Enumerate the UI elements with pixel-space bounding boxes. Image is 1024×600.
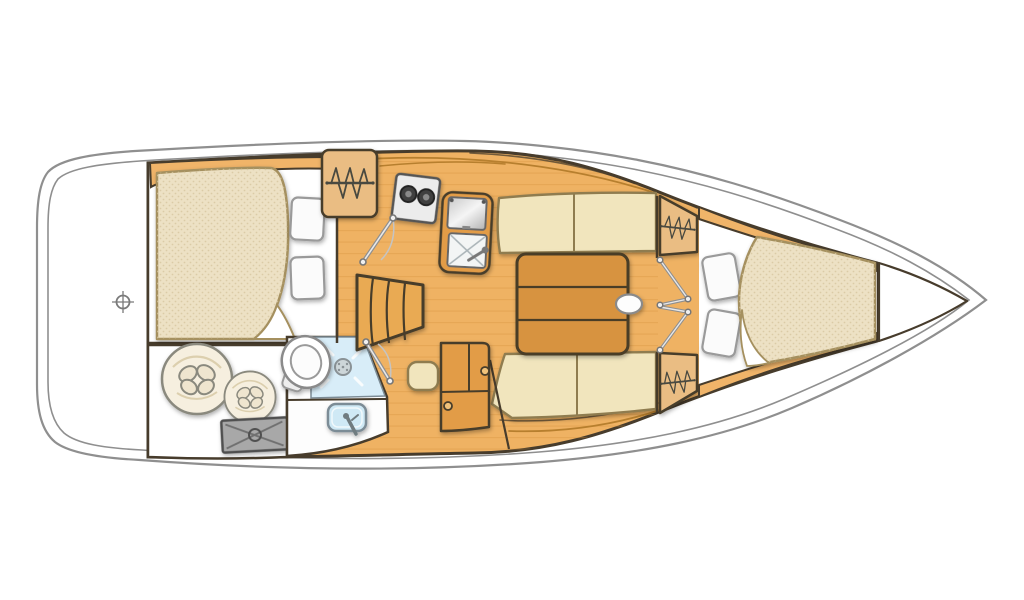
stool	[408, 362, 438, 390]
head-divider-wall	[287, 399, 387, 400]
icebox	[447, 197, 487, 230]
washbasin	[328, 404, 366, 434]
shower-drain-icon	[335, 359, 351, 375]
boat-floor-plan	[0, 0, 1024, 600]
hanging-locker-aft	[322, 150, 377, 217]
starboard-settee	[498, 193, 656, 253]
saloon-table	[517, 254, 642, 354]
deck-hatch	[221, 417, 289, 452]
aft-berth	[157, 168, 295, 339]
port-settee	[492, 352, 656, 418]
storage-cabinet	[441, 343, 489, 431]
galley-counter	[439, 192, 493, 275]
two-burner-stove	[391, 173, 440, 223]
aft-storage-locker	[148, 344, 289, 459]
aft-double-cabin	[148, 156, 337, 343]
table-handle	[616, 295, 642, 314]
floor-plan-svg	[0, 0, 1024, 600]
